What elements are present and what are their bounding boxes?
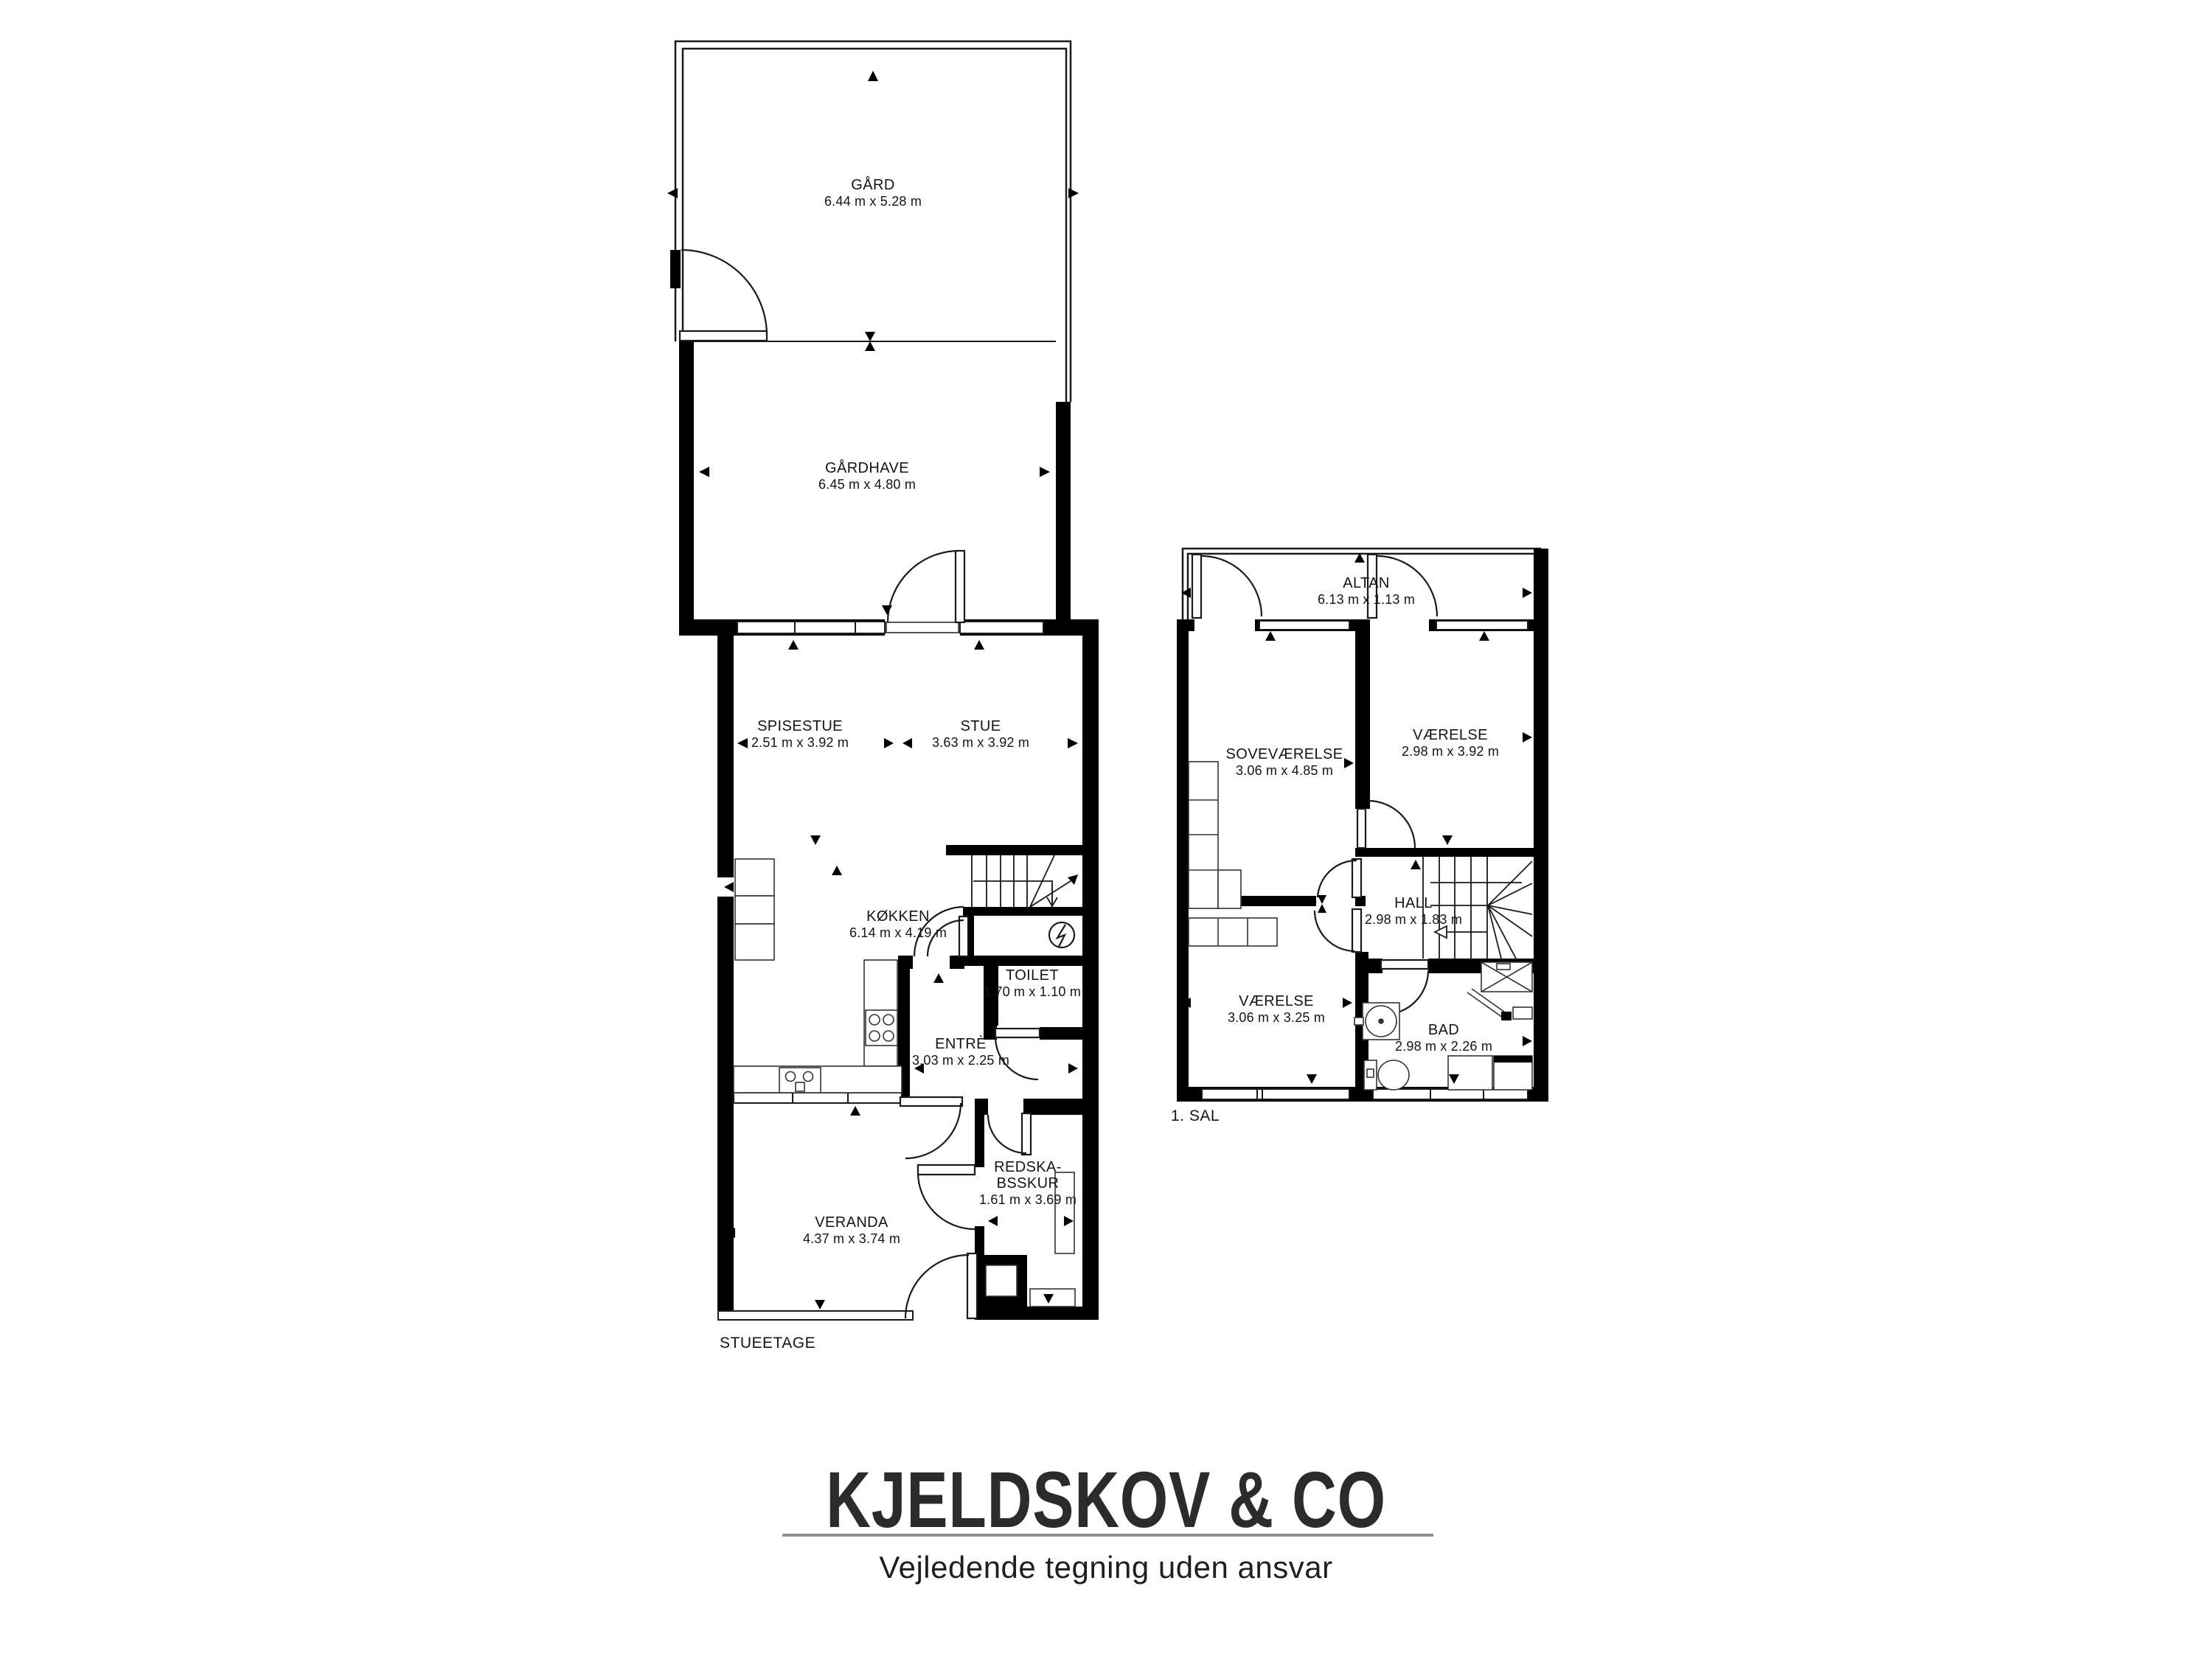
veranda-exit-door-leaf <box>967 1253 977 1318</box>
gaard-door-leaf <box>680 331 767 341</box>
balcony-door1-arc <box>1201 556 1262 616</box>
boiler-symbol <box>1049 922 1074 947</box>
ground-doors <box>680 250 1040 1318</box>
veranda-door-leaf <box>900 1097 962 1106</box>
room-top-door-arc <box>1368 801 1415 848</box>
first-closets <box>1189 762 1277 946</box>
room-label-toilet: TOILET 1.70 m x 1.10 m <box>984 967 1081 1000</box>
gaardhave-door-leaf <box>956 551 964 622</box>
kitchen-fixtures <box>734 859 902 1093</box>
room-bottom-door-leaf <box>1352 909 1361 952</box>
room-label-altan: ALTAN 6.13 m x 1.13 m <box>1318 575 1415 608</box>
shed-entry-door-leaf <box>1022 1113 1031 1155</box>
room-label-vaerelse-bottom: VÆRELSE 3.06 m x 3.25 m <box>1228 993 1325 1026</box>
room-label-spisestue: SPISESTUE 2.51 m x 3.92 m <box>751 718 849 751</box>
veranda-shed-door-leaf <box>918 1165 975 1175</box>
room-label-hall: HALL 2.98 m x 1.83 m <box>1365 895 1462 928</box>
room-label-entre: ENTRÈ 3.03 m x 2.25 m <box>912 1036 1009 1068</box>
room-bottom-door-arc <box>1315 911 1354 951</box>
gaardhave-door-arc <box>888 551 960 622</box>
brand-tagline: Vejledende tegning uden ansvar <box>0 1550 2212 1585</box>
ground-floor-caption: STUEETAGE <box>720 1335 815 1352</box>
ground-floor-plan <box>667 41 1099 1320</box>
room-label-vaerelse-top: VÆRELSE 2.98 m x 3.92 m <box>1402 727 1499 759</box>
veranda-door-arc <box>905 1103 961 1158</box>
utility-door-leaf <box>959 917 968 956</box>
bedroom-door-leaf <box>1352 859 1361 897</box>
brand-divider-line <box>782 1534 1433 1537</box>
shed-entry-door-arc <box>988 1115 1026 1153</box>
room-label-gaardhave: GÅRDHAVE 6.45 m x 4.80 m <box>818 460 916 493</box>
gaard-door-arc <box>681 250 767 335</box>
floorplan-page: GÅRD 6.44 m x 5.28 m GÅRDHAVE 6.45 m x 4… <box>0 0 2212 1659</box>
brand-logo: KJELDSKOV & CO <box>826 1463 1386 1537</box>
first-floor-caption: 1. SAL <box>1171 1107 1220 1125</box>
balcony-door1-leaf <box>1192 554 1201 618</box>
plan-drawing <box>0 0 2212 1659</box>
bath-door-leaf <box>1381 960 1428 969</box>
room-label-redskabsskur: REDSKA- BSSKUR 1.61 m x 3.69 m <box>979 1159 1077 1208</box>
ground-staircase <box>972 855 1078 907</box>
toilet-bowl <box>1378 1060 1409 1090</box>
room-top-door-leaf <box>1357 809 1366 848</box>
bedroom-door-arc <box>1318 860 1357 897</box>
brand-logo-wrap: KJELDSKOV & CO <box>0 1463 2212 1537</box>
veranda-shed-door-arc <box>918 1172 975 1229</box>
room-label-bad: BAD 2.98 m x 2.26 m <box>1395 1022 1492 1054</box>
room-label-veranda: VERANDA 4.37 m x 3.74 m <box>803 1214 900 1247</box>
room-label-koekken: KØKKEN 6.14 m x 4.19 m <box>849 908 947 941</box>
room-label-stue: STUE 3.63 m x 3.92 m <box>932 718 1029 751</box>
stove <box>866 1010 897 1046</box>
veranda-exit-door-arc <box>905 1255 969 1318</box>
room-label-gaard: GÅRD 6.44 m x 5.28 m <box>824 177 922 209</box>
room-label-sovevaerelse: SOVEVÆRELSE 3.06 m x 4.85 m <box>1226 746 1343 779</box>
